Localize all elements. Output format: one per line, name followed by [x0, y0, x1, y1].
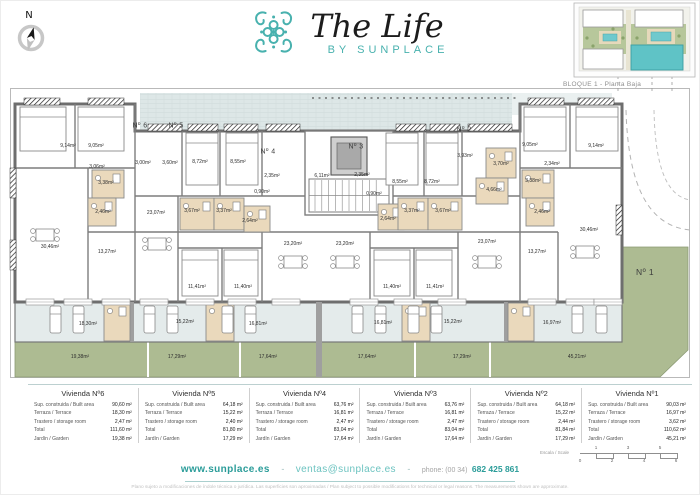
row-label: Total: [34, 426, 45, 434]
sun-lounger-icon: [73, 306, 84, 333]
row-value: 110,62 m²: [664, 426, 686, 434]
site-plan-thumbnail: [573, 2, 697, 80]
footer-divider: [185, 481, 515, 482]
scale-label: Escala / Scale: [540, 450, 569, 455]
row-value: 64,18 m²: [555, 401, 575, 409]
sun-lounger-icon: [144, 306, 155, 333]
sun-lounger-icon: [596, 306, 607, 333]
row-value: 63,76 m²: [445, 401, 465, 409]
unit-title: Vivienda Nº1: [588, 389, 686, 398]
fixture-icon: [497, 182, 504, 191]
row-label: Terraza / Terrace: [256, 409, 293, 417]
bed-icon: [524, 107, 566, 151]
chair-icon: [331, 264, 336, 269]
bed-icon: [416, 250, 452, 296]
footer-contact: www.sunplace.es - ventas@sunplace.es - p…: [0, 459, 700, 477]
row-label: Trastero / storage room: [366, 418, 418, 426]
fixture-icon: [419, 307, 426, 316]
unit-table-row: Sup. construida / Built area63,76 m²: [256, 401, 354, 409]
row-value: 83,04 m²: [334, 426, 354, 434]
row-value: 90,03 m²: [666, 401, 686, 409]
chair-icon: [167, 238, 172, 243]
row-label: Sup. construida / Built area: [145, 401, 205, 409]
scale-number: 5: [655, 445, 665, 450]
fixture-icon: [479, 183, 484, 188]
fixture-icon: [489, 153, 494, 158]
row-value: 15,22 m²: [555, 409, 575, 417]
phone-label: phone: (00 34): [422, 467, 468, 474]
sun-lounger-icon: [50, 306, 61, 333]
chair-icon: [497, 256, 502, 261]
row-label: Terraza / Terrace: [34, 409, 71, 417]
unit-title: Vivienda Nº4: [256, 389, 354, 398]
chair-icon: [497, 264, 502, 269]
legal-disclaimer: Plano sujeto a modificaciones de índole …: [0, 485, 700, 490]
fixture-icon: [203, 202, 210, 211]
fixture-icon: [233, 202, 240, 211]
row-value: 2,40 m²: [226, 418, 243, 426]
fixture-icon: [543, 202, 550, 211]
unit-title: Vivienda Nº2: [477, 389, 575, 398]
plan-sheet: { "brand": { "logo_title": "The Life", "…: [0, 0, 700, 495]
fixture-icon: [107, 308, 112, 313]
website-link[interactable]: www.sunplace.es: [181, 464, 270, 475]
unit-table-row: Sup. construida / Built area63,76 m²: [366, 401, 464, 409]
chair-icon: [473, 256, 478, 261]
highlighted-block-1: [631, 45, 683, 70]
bed-icon: [186, 133, 218, 185]
sun-lounger-icon: [431, 306, 442, 333]
unit-table-row: Jardín / Garden19,38 m²: [34, 435, 132, 443]
dining-table-icon: [284, 256, 302, 268]
row-value: 45,21 m²: [666, 435, 686, 443]
unit-table-row: Terraza / Terrace18,30 m²: [34, 409, 132, 417]
phone-number: 682 425 861: [472, 464, 519, 474]
row-value: 2,47 m²: [447, 418, 464, 426]
bed-icon: [386, 133, 418, 185]
fixture-icon: [259, 210, 266, 219]
unit-table-row: Jardín / Garden17,29 m²: [145, 435, 243, 443]
fixture-icon: [505, 152, 512, 161]
chair-icon: [55, 237, 60, 242]
unit-table-row: Total83,04 m²: [256, 426, 354, 434]
unit-table-row: Jardín / Garden17,29 m²: [477, 435, 575, 443]
chair-icon: [331, 256, 336, 261]
row-value: 16,97 m²: [666, 409, 686, 417]
bed-icon: [182, 250, 218, 296]
row-value: 2,44 m²: [558, 418, 575, 426]
logo-ornament-icon: [252, 7, 296, 57]
unit-table-row: Trastero / storage room2,47 m²: [256, 418, 354, 426]
unit-table-row: Sup. construida / Built area64,18 m²: [477, 401, 575, 409]
row-label: Trastero / storage room: [256, 418, 308, 426]
unit-table-row: Sup. construida / Built area90,60 m²: [34, 401, 132, 409]
scale-number: 1: [591, 445, 601, 450]
row-label: Jardín / Garden: [477, 435, 512, 443]
fixture-icon: [183, 203, 188, 208]
chair-icon: [143, 246, 148, 251]
logo-subtitle: BY SUNPLACE: [306, 44, 449, 56]
bed-icon: [426, 133, 458, 185]
unit-table-row: Terraza / Terrace15,22 m²: [477, 409, 575, 417]
unit-title: Vivienda Nº5: [145, 389, 243, 398]
row-value: 16,81 m²: [334, 409, 354, 417]
driveway-arc: [626, 110, 690, 230]
fixture-icon: [401, 203, 406, 208]
unit-table: Vivienda Nº6Sup. construida / Built area…: [28, 388, 138, 443]
unit-table-row: Terraza / Terrace16,81 m²: [256, 409, 354, 417]
elevator-cab: [337, 143, 361, 169]
row-value: 3,62 m²: [669, 418, 686, 426]
unit-table-row: Trastero / storage room2,44 m²: [477, 418, 575, 426]
unit-table-row: Sup. construida / Built area64,18 m²: [145, 401, 243, 409]
sun-lounger-icon: [222, 306, 233, 333]
chair-icon: [571, 246, 576, 251]
row-label: Terraza / Terrace: [366, 409, 403, 417]
row-label: Total: [145, 426, 156, 434]
fixture-icon: [247, 211, 252, 216]
unit-title: Vivienda Nº3: [366, 389, 464, 398]
unit-table: Vivienda Nº1Sup. construida / Built area…: [581, 388, 692, 443]
chair-icon: [55, 229, 60, 234]
row-label: Total: [256, 426, 267, 434]
row-label: Total: [477, 426, 488, 434]
unit-table: Vivienda Nº4Sup. construida / Built area…: [249, 388, 360, 443]
row-label: Terraza / Terrace: [145, 409, 182, 417]
site-plan-caption: BLOQUE 1 - Planta Baja: [563, 81, 641, 88]
chair-icon: [595, 254, 600, 259]
chair-icon: [31, 229, 36, 234]
row-label: Trastero / storage room: [588, 418, 640, 426]
row-value: 17,29 m²: [223, 435, 243, 443]
unit-table-row: Trastero / storage room2,47 m²: [34, 418, 132, 426]
sun-lounger-icon: [408, 306, 419, 333]
chair-icon: [31, 237, 36, 242]
sun-lounger-icon: [572, 306, 583, 333]
fixture-icon: [119, 307, 126, 316]
row-label: Sup. construida / Built area: [256, 401, 316, 409]
row-value: 83,04 m²: [445, 426, 465, 434]
bed-icon: [20, 107, 66, 151]
row-value: 19,38 m²: [112, 435, 132, 443]
row-value: 17,64 m²: [445, 435, 465, 443]
row-label: Terraza / Terrace: [588, 409, 625, 417]
row-value: 15,22 m²: [223, 409, 243, 417]
fixture-icon: [217, 203, 222, 208]
row-label: Sup. construida / Built area: [366, 401, 426, 409]
chair-icon: [279, 264, 284, 269]
row-label: Sup. construida / Built area: [588, 401, 648, 409]
logo-title: The Life: [310, 9, 443, 43]
fixture-icon: [113, 174, 120, 183]
row-label: Trastero / storage room: [34, 418, 86, 426]
chair-icon: [279, 256, 284, 261]
row-value: 2,47 m²: [337, 418, 354, 426]
dining-table-icon: [148, 238, 166, 250]
fixture-icon: [525, 175, 530, 180]
unit-table-row: Trastero / storage room3,62 m²: [588, 418, 686, 426]
brand-logo: The Life BY SUNPLACE: [252, 7, 449, 57]
row-value: 111,60 m²: [110, 426, 132, 434]
row-value: 17,64 m²: [334, 435, 354, 443]
unit-table: Vivienda Nº5Sup. construida / Built area…: [138, 388, 249, 443]
separator: -: [281, 464, 284, 474]
unit-table-row: Jardín / Garden17,64 m²: [366, 435, 464, 443]
unit-tables: Vivienda Nº6Sup. construida / Built area…: [28, 384, 692, 443]
row-value: 64,18 m²: [223, 401, 243, 409]
row-value: 81,80 m²: [223, 426, 243, 434]
unit-table: Vivienda Nº3Sup. construida / Built area…: [359, 388, 470, 443]
unit-table-row: Total110,62 m²: [588, 426, 686, 434]
separator: -: [407, 464, 410, 474]
fixture-icon: [381, 209, 386, 214]
dining-table-icon: [36, 229, 54, 241]
fixture-icon: [91, 203, 96, 208]
row-label: Terraza / Terrace: [477, 409, 514, 417]
fixture-icon: [95, 175, 100, 180]
sun-lounger-icon: [245, 306, 256, 333]
fixture-icon: [511, 308, 516, 313]
chair-icon: [595, 246, 600, 251]
row-label: Jardín / Garden: [366, 435, 401, 443]
unit-table-row: Total111,60 m²: [34, 426, 132, 434]
row-label: Jardín / Garden: [256, 435, 291, 443]
fixture-icon: [451, 202, 458, 211]
row-label: Trastero / storage room: [145, 418, 197, 426]
row-label: Total: [588, 426, 599, 434]
chair-icon: [167, 246, 172, 251]
unit-table-row: Trastero / storage room2,40 m²: [145, 418, 243, 426]
chair-icon: [143, 238, 148, 243]
driveway-arc: [654, 110, 690, 200]
unit-table-row: Terraza / Terrace16,97 m²: [588, 409, 686, 417]
sun-lounger-icon: [352, 306, 363, 333]
row-value: 81,84 m²: [555, 426, 575, 434]
row-value: 63,76 m²: [334, 401, 354, 409]
bed-icon: [78, 107, 124, 151]
bed-icon: [374, 250, 410, 296]
row-label: Jardín / Garden: [145, 435, 180, 443]
garden-band: [15, 342, 490, 377]
unit-table-row: Terraza / Terrace15,22 m²: [145, 409, 243, 417]
unit-title: Vivienda Nº6: [34, 389, 132, 398]
row-value: 18,30 m²: [112, 409, 132, 417]
row-label: Total: [366, 426, 377, 434]
chair-icon: [355, 264, 360, 269]
dining-table-icon: [576, 246, 594, 258]
row-label: Jardín / Garden: [34, 435, 69, 443]
row-value: 90,60 m²: [112, 401, 132, 409]
unit-table: Vivienda Nº2Sup. construida / Built area…: [470, 388, 581, 443]
north-compass-icon: N: [12, 6, 52, 60]
fixture-icon: [417, 202, 424, 211]
sun-lounger-icon: [167, 306, 178, 333]
chair-icon: [355, 256, 360, 261]
fixture-icon: [523, 307, 530, 316]
chair-icon: [303, 264, 308, 269]
row-label: Trastero / storage room: [477, 418, 529, 426]
fixture-icon: [431, 203, 436, 208]
bed-icon: [576, 107, 618, 151]
unit-table-row: Sup. construida / Built area90,03 m²: [588, 401, 686, 409]
unit-table-row: Total81,80 m²: [145, 426, 243, 434]
row-value: 17,29 m²: [555, 435, 575, 443]
dining-table-icon: [336, 256, 354, 268]
dining-table-icon: [478, 256, 496, 268]
unit-table-row: Total81,84 m²: [477, 426, 575, 434]
unit-table-row: Total83,04 m²: [366, 426, 464, 434]
chair-icon: [571, 254, 576, 259]
chair-icon: [303, 256, 308, 261]
bed-icon: [224, 250, 258, 296]
unit-table-row: Terraza / Terrace16,81 m²: [366, 409, 464, 417]
email-link[interactable]: ventas@sunplace.es: [296, 464, 396, 475]
fixture-icon: [543, 174, 550, 183]
fixture-icon: [105, 202, 112, 211]
unit-table-row: Jardín / Garden45,21 m²: [588, 435, 686, 443]
chair-icon: [473, 264, 478, 269]
row-label: Jardín / Garden: [588, 435, 623, 443]
sun-lounger-icon: [375, 306, 386, 333]
compass-north-label: N: [25, 10, 32, 21]
unit-table-row: Trastero / storage room2,47 m²: [366, 418, 464, 426]
fixture-icon: [209, 308, 214, 313]
row-value: 2,47 m²: [115, 418, 132, 426]
row-label: Sup. construida / Built area: [34, 401, 94, 409]
scale-number: 3: [623, 445, 633, 450]
row-value: 16,81 m²: [445, 409, 465, 417]
fixture-icon: [529, 203, 534, 208]
bed-icon: [226, 133, 258, 185]
unit-table-row: Jardín / Garden17,64 m²: [256, 435, 354, 443]
row-label: Sup. construida / Built area: [477, 401, 537, 409]
